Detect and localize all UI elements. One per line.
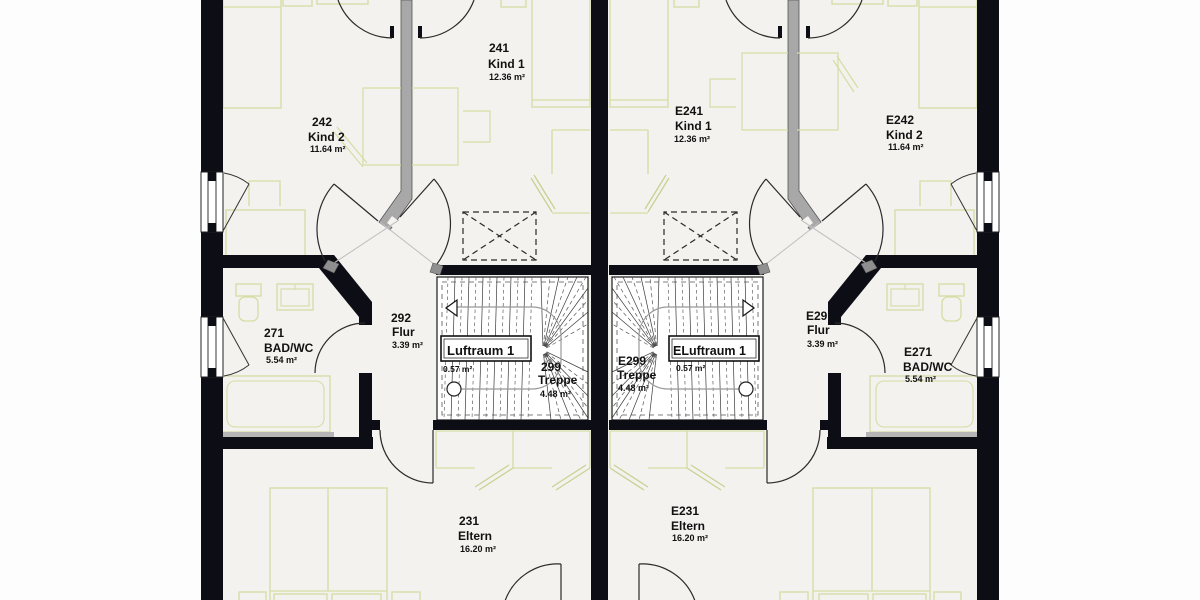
svg-text:3.39 m²: 3.39 m² bbox=[392, 340, 423, 350]
svg-text:12.36 m²: 12.36 m² bbox=[489, 72, 525, 82]
svg-text:16.20 m²: 16.20 m² bbox=[460, 544, 496, 554]
svg-text:Flur: Flur bbox=[392, 325, 415, 339]
svg-text:E241: E241 bbox=[675, 104, 703, 118]
svg-text:0.57 m²: 0.57 m² bbox=[676, 363, 705, 373]
svg-text:Kind 1: Kind 1 bbox=[675, 119, 712, 133]
svg-text:5.54 m²: 5.54 m² bbox=[905, 374, 936, 384]
svg-text:Flur: Flur bbox=[807, 323, 830, 337]
svg-text:E231: E231 bbox=[671, 504, 699, 518]
svg-text:11.64 m²: 11.64 m² bbox=[310, 144, 346, 154]
svg-text:Luftraum 1: Luftraum 1 bbox=[447, 343, 514, 358]
svg-text:16.20 m²: 16.20 m² bbox=[672, 533, 708, 543]
svg-text:4.48 m²: 4.48 m² bbox=[540, 389, 571, 399]
svg-text:271: 271 bbox=[264, 326, 284, 340]
svg-text:ELuftraum 1: ELuftraum 1 bbox=[673, 344, 746, 358]
svg-text:5.54 m²: 5.54 m² bbox=[266, 355, 297, 365]
svg-text:BAD/WC: BAD/WC bbox=[264, 341, 314, 355]
svg-text:Treppe: Treppe bbox=[617, 368, 657, 382]
svg-text:241: 241 bbox=[489, 41, 509, 55]
svg-text:E299: E299 bbox=[618, 354, 646, 368]
svg-text:Treppe: Treppe bbox=[538, 373, 578, 387]
svg-text:12.36 m²: 12.36 m² bbox=[674, 134, 710, 144]
svg-text:3.39 m²: 3.39 m² bbox=[807, 339, 838, 349]
svg-text:4.48 m²: 4.48 m² bbox=[618, 383, 649, 393]
svg-text:242: 242 bbox=[312, 115, 332, 129]
svg-text:Kind 1: Kind 1 bbox=[488, 57, 525, 71]
svg-text:Kind 2: Kind 2 bbox=[886, 128, 923, 142]
svg-text:299: 299 bbox=[541, 360, 561, 374]
svg-text:0.57 m²: 0.57 m² bbox=[443, 364, 472, 374]
svg-text:E271: E271 bbox=[904, 345, 932, 359]
svg-text:231: 231 bbox=[459, 514, 479, 528]
svg-text:E29: E29 bbox=[806, 309, 828, 323]
svg-text:Eltern: Eltern bbox=[458, 529, 492, 543]
svg-text:11.64 m²: 11.64 m² bbox=[888, 142, 924, 152]
svg-text:BAD/WC: BAD/WC bbox=[903, 360, 953, 374]
svg-text:E242: E242 bbox=[886, 113, 914, 127]
svg-text:292: 292 bbox=[391, 311, 411, 325]
svg-text:Kind 2: Kind 2 bbox=[308, 130, 345, 144]
svg-text:Eltern: Eltern bbox=[671, 519, 705, 533]
